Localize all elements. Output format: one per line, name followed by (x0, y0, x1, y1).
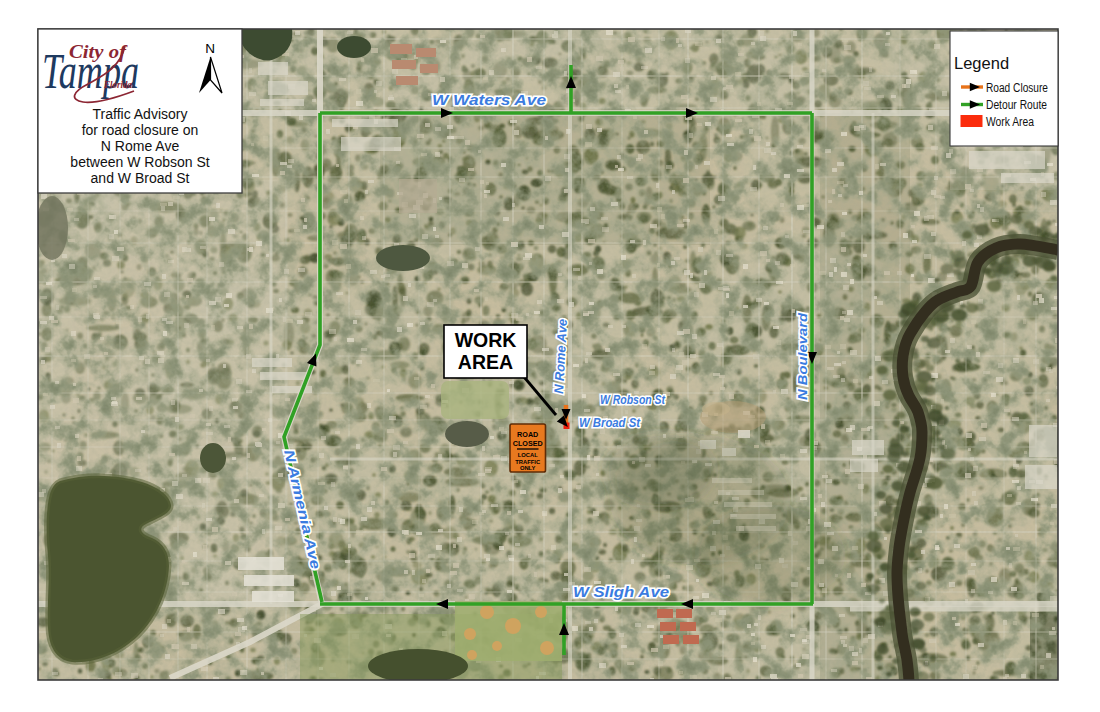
svg-text:Detour Route: Detour Route (986, 98, 1047, 112)
svg-text:Legend: Legend (954, 54, 1009, 72)
svg-text:W Broad St: W Broad St (579, 416, 641, 430)
svg-text:Work Area: Work Area (986, 115, 1034, 129)
svg-text:Road Closure: Road Closure (986, 81, 1048, 95)
svg-text:W Waters Ave: W Waters Ave (432, 92, 546, 108)
svg-text:ROAD: ROAD (517, 430, 538, 439)
svg-text:WORK: WORK (455, 329, 517, 351)
svg-text:Traffic Advisory: Traffic Advisory (93, 106, 188, 122)
svg-text:N Rome Ave: N Rome Ave (101, 138, 180, 154)
svg-text:ONLY: ONLY (520, 465, 536, 471)
svg-text:LOCAL: LOCAL (518, 452, 538, 458)
svg-text:Tampa: Tampa (42, 43, 139, 99)
svg-text:TRAFFIC: TRAFFIC (515, 459, 541, 465)
svg-text:N Boulevard: N Boulevard (795, 312, 810, 400)
svg-text:N: N (205, 41, 215, 56)
svg-text:CLOSED: CLOSED (513, 439, 543, 448)
svg-text:AREA: AREA (458, 351, 513, 373)
svg-text:for road closure on: for road closure on (82, 122, 199, 138)
svg-text:W Sligh Ave: W Sligh Ave (573, 584, 669, 600)
svg-text:and W Broad St: and W Broad St (91, 170, 190, 186)
svg-text:Florida: Florida (103, 79, 132, 90)
svg-text:W Robson St: W Robson St (600, 393, 666, 407)
svg-text:between W Robson St: between W Robson St (70, 154, 209, 170)
